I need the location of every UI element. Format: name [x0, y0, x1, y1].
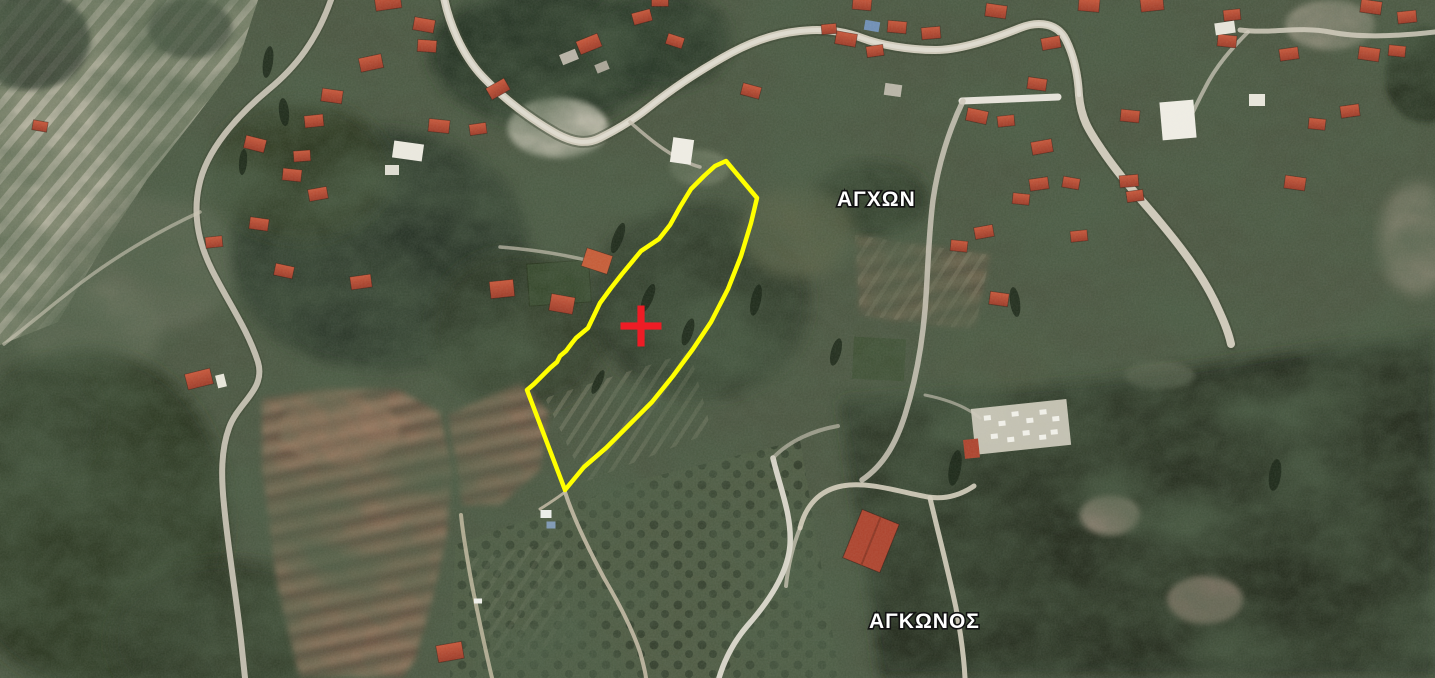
grain-overlay — [0, 0, 1435, 678]
map-viewport[interactable]: ΑΓΧΩΝ ΑΓΚΩΝΟΣ — [0, 0, 1435, 678]
map-canvas[interactable]: ΑΓΧΩΝ ΑΓΚΩΝΟΣ — [0, 0, 1435, 678]
place-label-agchon: ΑΓΧΩΝ — [837, 188, 916, 211]
place-label-agkonos: ΑΓΚΩΝΟΣ — [869, 610, 980, 633]
